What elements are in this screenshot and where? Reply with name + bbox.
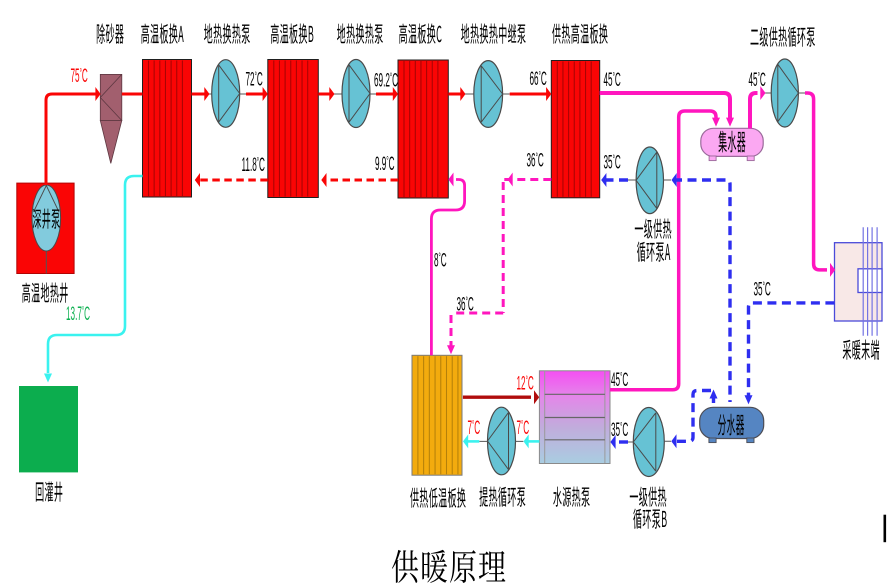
svg-text:75°C: 75°C bbox=[71, 66, 88, 87]
svg-text:11.8°C: 11.8°C bbox=[242, 155, 265, 176]
svg-text:12°C: 12°C bbox=[517, 374, 534, 395]
svg-text:35°C: 35°C bbox=[604, 153, 621, 174]
svg-text:45°C: 45°C bbox=[604, 70, 621, 91]
svg-text:45°C: 45°C bbox=[611, 370, 628, 391]
svg-text:66°C: 66°C bbox=[530, 69, 547, 90]
svg-text:35°C: 35°C bbox=[754, 280, 771, 301]
svg-text:69.2°C: 69.2°C bbox=[374, 71, 398, 92]
svg-text:72°C: 72°C bbox=[246, 70, 263, 91]
svg-text:36°C: 36°C bbox=[457, 295, 474, 316]
svg-text:13.7°C: 13.7°C bbox=[66, 304, 90, 325]
svg-text:36°C: 36°C bbox=[527, 151, 544, 172]
svg-text:45°C: 45°C bbox=[749, 70, 766, 91]
svg-text:9.9°C: 9.9°C bbox=[375, 154, 394, 175]
svg-text:35°C: 35°C bbox=[611, 420, 628, 441]
